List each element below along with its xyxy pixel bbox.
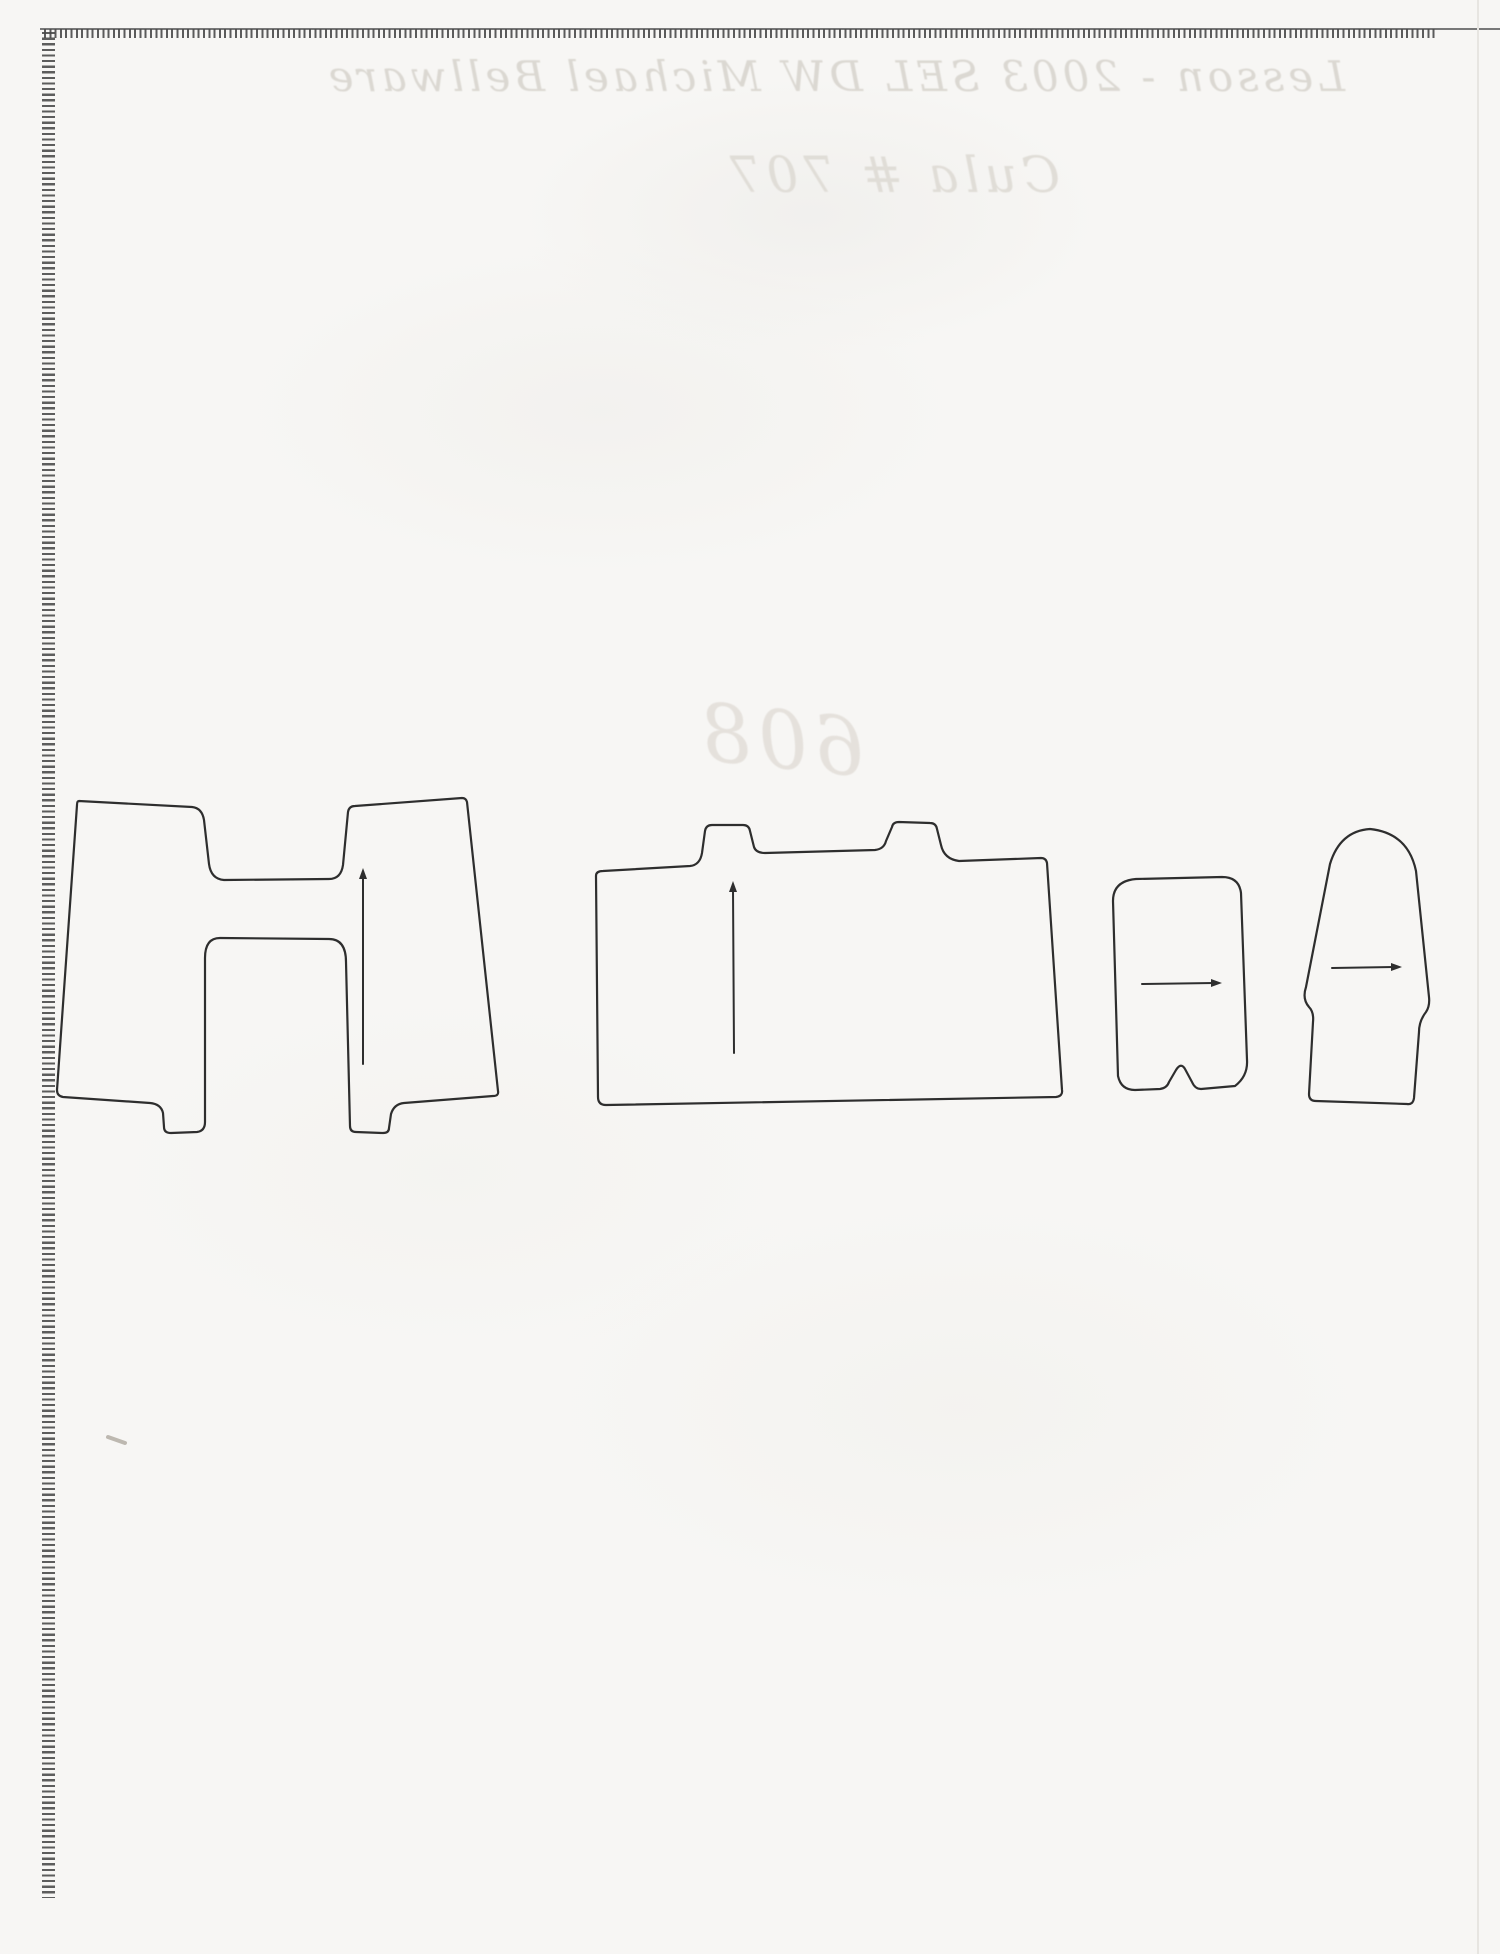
cross-line-dome-piece-arrowhead	[1391, 963, 1402, 971]
cross-line-small-piece-arrowhead	[1211, 979, 1222, 987]
grain-line-wide-piece	[733, 889, 734, 1053]
grain-line-h-shape-arrowhead	[359, 868, 367, 879]
cross-line-small-piece	[1142, 983, 1214, 984]
pencil-scratch-mark	[108, 1437, 125, 1443]
pattern-piece-h-shape	[57, 798, 498, 1133]
scanned-page: Lesson - 2003 SEL DW Michael Bellware Cu…	[0, 0, 1500, 1954]
grain-line-wide-piece-arrowhead	[729, 881, 737, 892]
cross-line-dome-piece	[1332, 967, 1394, 968]
pattern-piece-wide-tabs	[596, 822, 1062, 1105]
traced-pattern-outlines	[0, 0, 1500, 1954]
